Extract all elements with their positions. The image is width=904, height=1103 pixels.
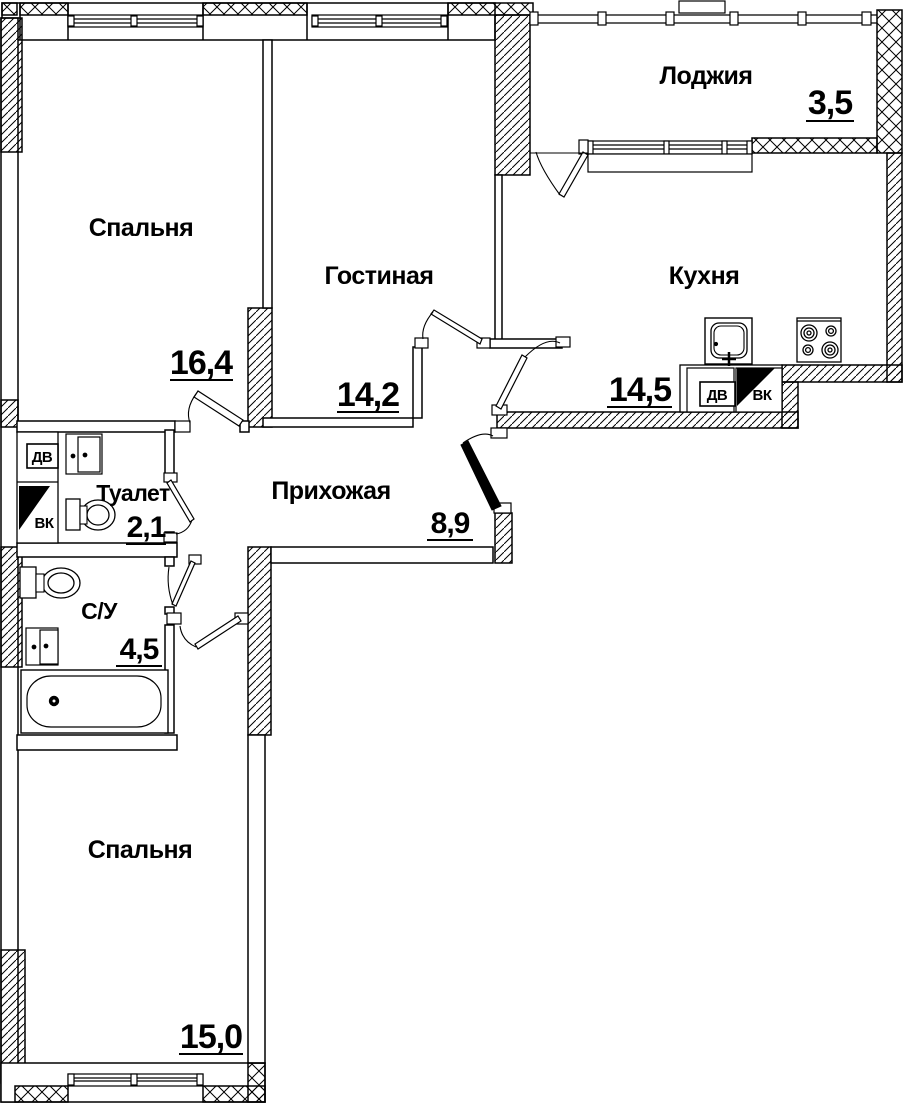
room-area: 16,4 <box>170 344 233 382</box>
room-area: 14,2 <box>337 376 399 414</box>
room-name: Гостиная <box>325 262 434 290</box>
floor-plan-svg: ДВ ВК ДВ ВК <box>0 0 904 1103</box>
room-area: 15,0 <box>180 1018 242 1056</box>
room-area: 8,9 <box>431 507 470 540</box>
window-living <box>312 15 447 27</box>
room-name: Туалет <box>96 480 170 506</box>
toilet-cabinet-icon <box>66 434 102 474</box>
bathroom-cabinet-icon <box>26 628 58 665</box>
wall-notch-top <box>490 339 562 348</box>
room-name: Спальня <box>88 836 193 864</box>
window-sill-shelf <box>588 154 752 172</box>
bathroom-wc-icon <box>20 567 80 598</box>
room-name: Прихожая <box>271 477 390 505</box>
room-area: 2,1 <box>127 511 166 544</box>
vent-vk-label: ВК <box>35 515 55 532</box>
window-kitchen-loggia <box>588 141 752 172</box>
vent-vk-label: ВК <box>753 387 773 404</box>
loggia-pillar <box>679 1 725 13</box>
wall-su-right-stub <box>165 557 174 566</box>
room-name: Кухня <box>669 262 740 290</box>
room-name: Спальня <box>89 214 194 242</box>
vent-kitchen: ДВ ВК <box>680 365 782 412</box>
window-bedroom2 <box>68 1074 203 1086</box>
room-area: 3,5 <box>808 84 852 122</box>
room-name: С/У <box>81 598 118 624</box>
wall-toilet-su <box>17 543 177 557</box>
room-area: 14,5 <box>609 371 671 409</box>
window-bedroom1 <box>68 15 203 27</box>
wall-su-bed2 <box>17 735 177 750</box>
kitchen-sink-icon <box>705 318 752 366</box>
wall-living-kitchen <box>495 175 502 342</box>
wall-bed1-south-left <box>17 421 175 432</box>
bathtub-icon <box>21 670 168 733</box>
wall-hall-notch <box>413 347 422 418</box>
kitchen-stove-icon <box>797 318 841 362</box>
wall-hall-south <box>271 547 493 563</box>
wall-bed1-living <box>263 40 272 308</box>
vent-dv-label: ДВ <box>707 387 728 404</box>
vent-toilet: ДВ ВК <box>17 432 58 543</box>
floor-plan: ДВ ВК ДВ ВК <box>0 0 904 1103</box>
room-area: 4,5 <box>120 633 159 666</box>
wall-toilet-right-top <box>165 430 174 474</box>
vent-dv-label: ДВ <box>32 449 53 466</box>
room-name: Лоджия <box>659 62 752 90</box>
wall-living-south <box>263 418 413 427</box>
